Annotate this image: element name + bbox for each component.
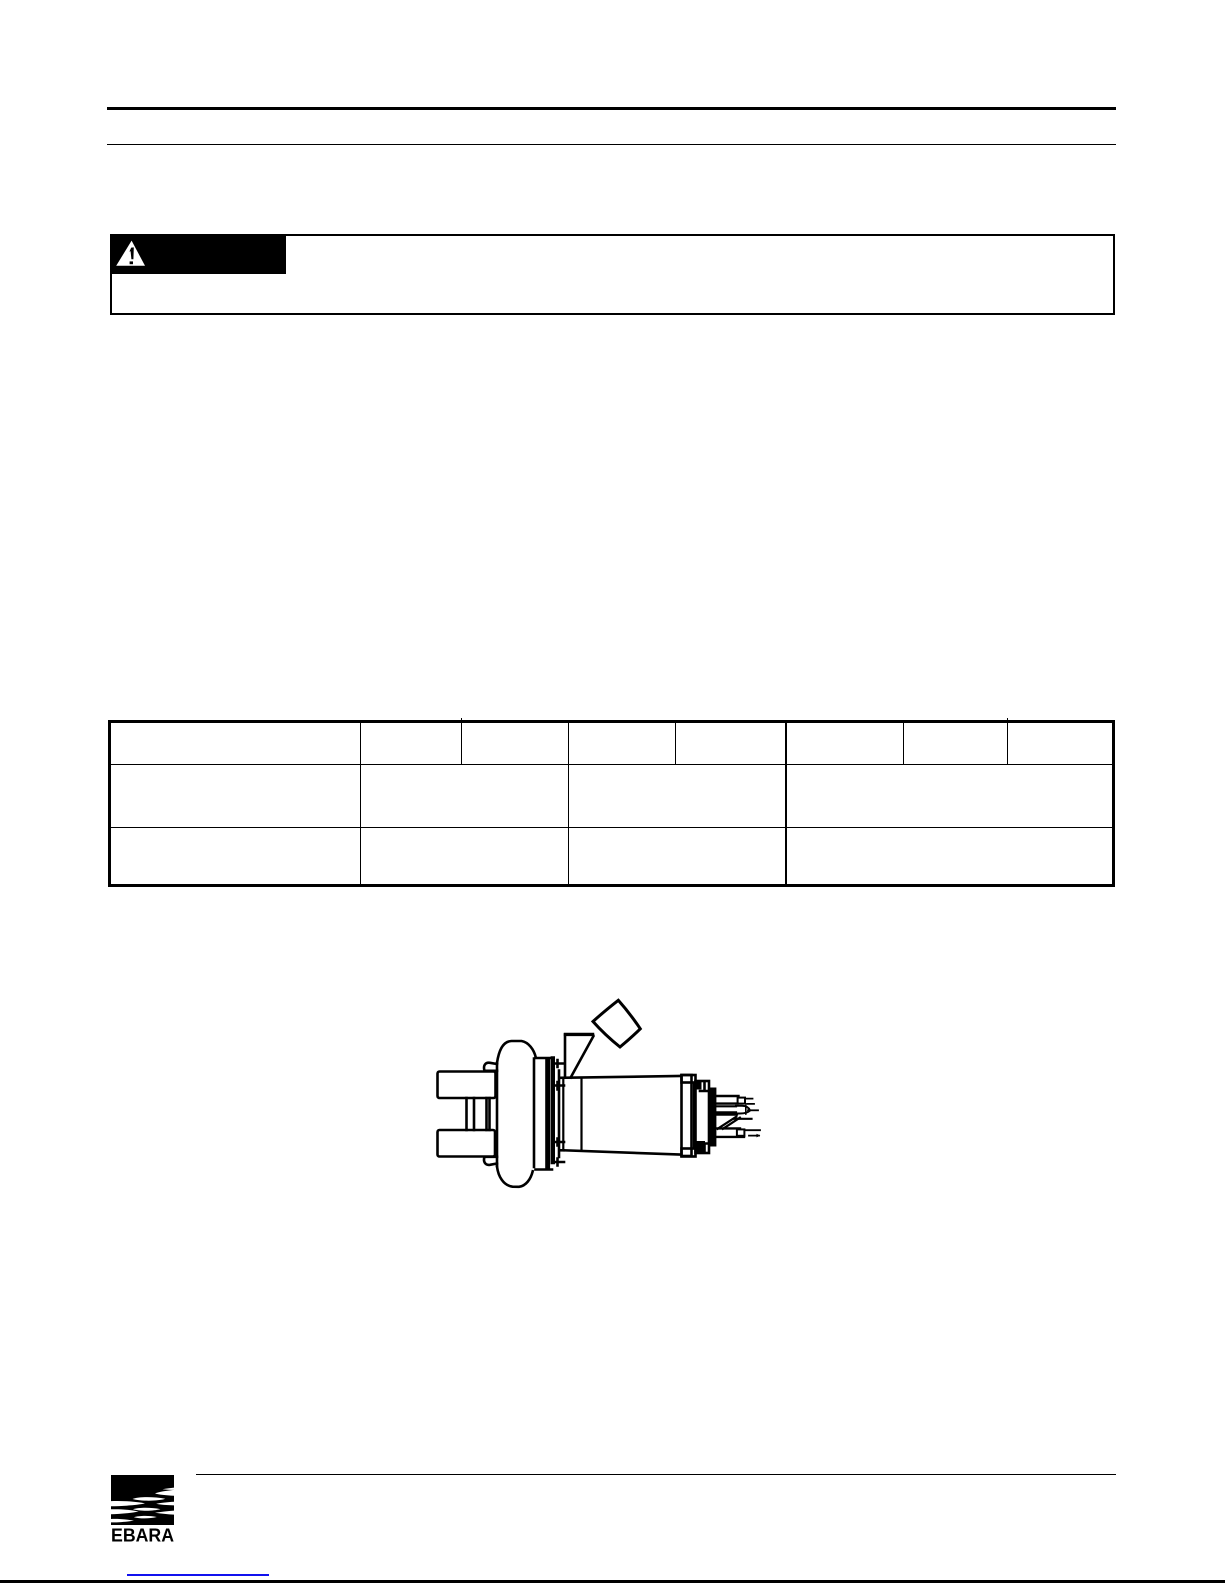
svg-text:EBARA: EBARA	[111, 1526, 174, 1545]
